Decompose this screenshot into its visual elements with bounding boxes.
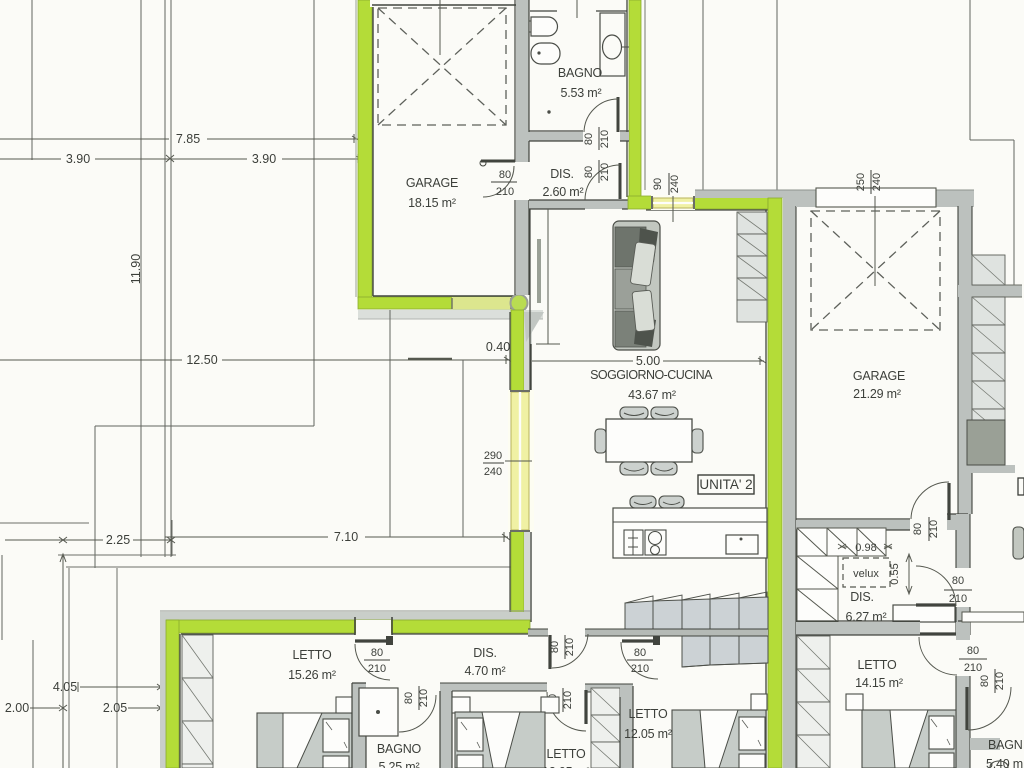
svg-text:210: 210 xyxy=(562,691,574,709)
svg-text:DIS.: DIS. xyxy=(550,167,574,181)
svg-text:12.05 m²: 12.05 m² xyxy=(624,727,672,741)
svg-text:80: 80 xyxy=(967,645,979,657)
svg-text:210: 210 xyxy=(599,163,611,181)
svg-text:21.29 m²: 21.29 m² xyxy=(853,387,901,401)
svg-text:14.15 m²: 14.15 m² xyxy=(855,676,903,690)
svg-text:0.55: 0.55 xyxy=(889,563,901,584)
svg-text:DIS.: DIS. xyxy=(473,646,497,660)
svg-text:240: 240 xyxy=(871,173,883,191)
svg-text:43.67 m²: 43.67 m² xyxy=(628,388,676,402)
svg-text:BAGNO: BAGNO xyxy=(377,742,422,756)
svg-text:80: 80 xyxy=(499,169,511,181)
svg-text:80: 80 xyxy=(979,675,991,687)
svg-text:210: 210 xyxy=(368,663,386,675)
svg-text:UNITA' 2: UNITA' 2 xyxy=(699,477,752,492)
svg-text:2.60 m²: 2.60 m² xyxy=(543,185,584,199)
svg-text:5.53 m²: 5.53 m² xyxy=(561,86,602,100)
svg-text:2.25: 2.25 xyxy=(106,533,130,547)
svg-text:BAGNO: BAGNO xyxy=(558,66,603,80)
svg-text:LETTO: LETTO xyxy=(546,747,586,761)
svg-text:210: 210 xyxy=(964,662,982,674)
svg-text:3.90: 3.90 xyxy=(66,152,90,166)
svg-text:12.50: 12.50 xyxy=(186,353,217,367)
svg-text:210: 210 xyxy=(949,593,967,605)
svg-text:80: 80 xyxy=(952,575,964,587)
svg-text:0.40: 0.40 xyxy=(486,340,510,354)
svg-text:BAGN: BAGN xyxy=(988,738,1023,752)
svg-text:210: 210 xyxy=(418,689,430,707)
svg-text:90: 90 xyxy=(652,178,664,190)
svg-text:250: 250 xyxy=(855,173,867,191)
svg-text:2.00: 2.00 xyxy=(5,701,29,715)
svg-text:3.90: 3.90 xyxy=(252,152,276,166)
svg-text:5.00: 5.00 xyxy=(636,354,660,368)
svg-text:4.70 m²: 4.70 m² xyxy=(465,664,506,678)
svg-text:velux: velux xyxy=(853,568,879,580)
svg-text:80: 80 xyxy=(583,166,595,178)
svg-text:11.90: 11.90 xyxy=(129,254,143,284)
svg-text:2.05: 2.05 xyxy=(103,701,127,715)
svg-text:80: 80 xyxy=(403,692,415,704)
svg-text:4.05: 4.05 xyxy=(53,680,77,694)
svg-text:0.98: 0.98 xyxy=(855,542,876,554)
svg-text:80: 80 xyxy=(912,523,924,535)
svg-text:6.27 m²: 6.27 m² xyxy=(846,610,887,624)
svg-text:7.85: 7.85 xyxy=(176,132,200,146)
svg-text:240: 240 xyxy=(484,466,502,478)
svg-text:210: 210 xyxy=(564,638,576,656)
svg-text:18.15 m²: 18.15 m² xyxy=(408,196,456,210)
svg-text:210: 210 xyxy=(496,186,514,198)
svg-text:80: 80 xyxy=(634,647,646,659)
svg-text:210: 210 xyxy=(994,672,1006,690)
svg-text:80: 80 xyxy=(549,641,561,653)
svg-text:SOGGIORNO-CUCINA: SOGGIORNO-CUCINA xyxy=(590,368,713,382)
svg-text:80: 80 xyxy=(371,647,383,659)
svg-text:LETTO: LETTO xyxy=(292,648,332,662)
svg-text:DIS.: DIS. xyxy=(850,590,874,604)
svg-text:240: 240 xyxy=(669,175,681,193)
svg-text:210: 210 xyxy=(599,130,611,148)
svg-text:LETTO: LETTO xyxy=(857,658,897,672)
svg-text:LETTO: LETTO xyxy=(628,707,668,721)
svg-text:210: 210 xyxy=(631,663,649,675)
svg-text:5.25 m²: 5.25 m² xyxy=(379,760,420,768)
svg-text:7.10: 7.10 xyxy=(334,530,358,544)
svg-text:80: 80 xyxy=(583,133,595,145)
svg-text:290: 290 xyxy=(484,450,502,462)
svg-text:210: 210 xyxy=(928,520,940,538)
svg-text:GARAGE: GARAGE xyxy=(853,369,905,383)
svg-text:GARAGE: GARAGE xyxy=(406,176,458,190)
svg-text:15.26 m²: 15.26 m² xyxy=(288,668,336,682)
